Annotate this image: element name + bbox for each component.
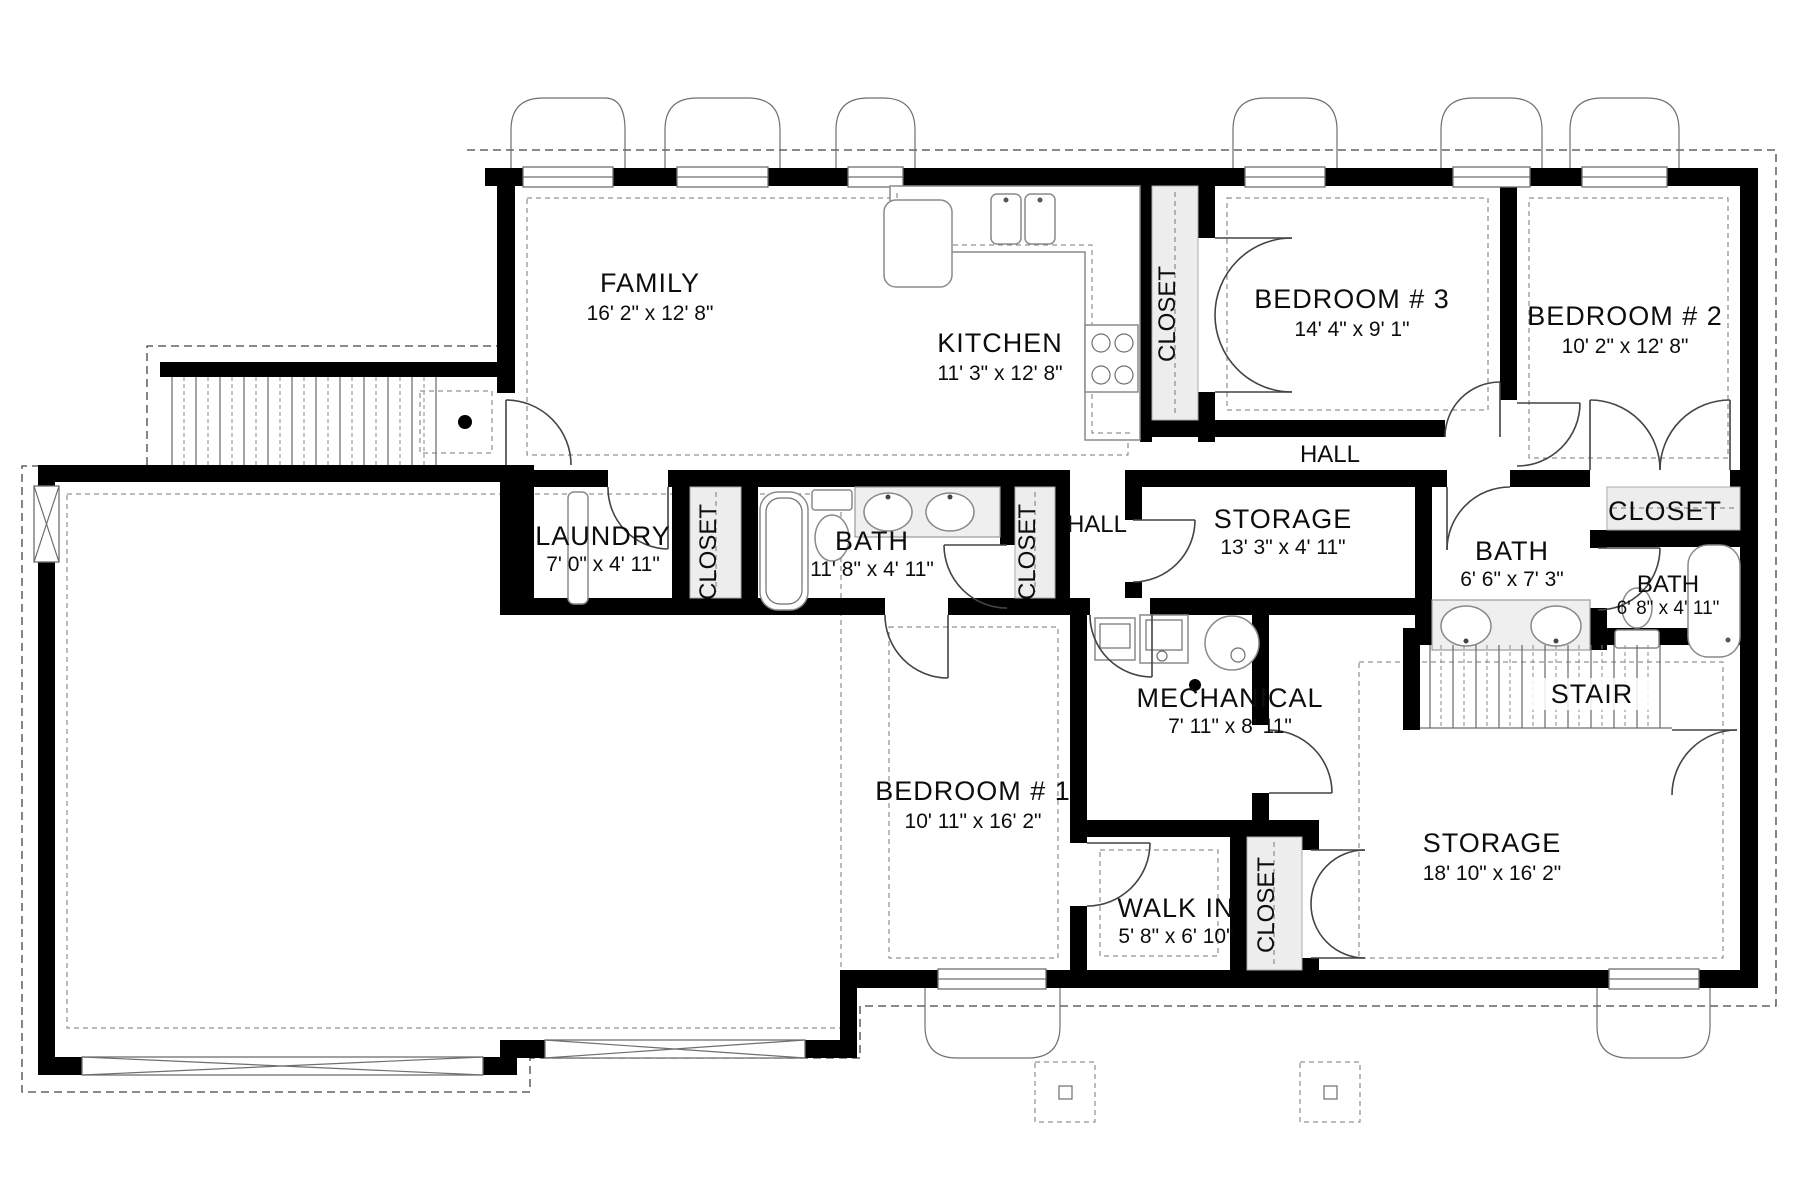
garage-beam-right <box>545 1040 805 1058</box>
storage-small-door <box>1133 520 1195 582</box>
label-hall-lower: HALL <box>1067 511 1127 538</box>
walkin-closet-double-doors <box>1311 850 1365 958</box>
bathtub-1 <box>760 492 808 610</box>
bedroom2-door <box>1517 403 1580 466</box>
label-bedroom3: BEDROOM # 3 <box>1254 284 1450 314</box>
label-storage-big: STORAGE <box>1423 828 1562 858</box>
stove <box>1085 325 1138 392</box>
dim-storage-big: 18' 10" x 16' 2" <box>1423 862 1562 885</box>
label-bath1: BATH <box>835 526 909 556</box>
label-stair: STAIR <box>1528 678 1656 710</box>
label-closet-bedroom2: CLOSET <box>1608 496 1722 526</box>
label-closet-laundry: CLOSET <box>695 504 722 600</box>
label-closet-kitchen: CLOSET <box>1154 266 1181 362</box>
label-hall-upper: HALL <box>1300 441 1360 468</box>
label-closet-walkin: CLOSET <box>1253 857 1280 953</box>
label-bath3: BATH <box>1637 571 1699 598</box>
dim-mechanical: 7' 11" x 8' 11" <box>1168 715 1292 738</box>
bedroom2-closet-double-doors <box>1590 400 1730 470</box>
garage-beam-left <box>82 1057 483 1075</box>
kitchen-peninsula <box>884 200 952 287</box>
label-closet-hall: CLOSET <box>1014 504 1041 600</box>
label-bath2: BATH <box>1475 536 1549 566</box>
furnace <box>1095 615 1188 663</box>
water-heater <box>1205 616 1259 670</box>
label-laundry: LAUNDRY <box>535 521 671 551</box>
svg-text:STAIR: STAIR <box>1551 679 1634 709</box>
dim-bath2: 6' 6" x 7' 3" <box>1460 568 1563 591</box>
mechanical-door-east <box>1269 730 1332 793</box>
label-kitchen: KITCHEN <box>937 328 1063 358</box>
dim-kitchen: 11' 3" x 12' 8" <box>937 362 1062 385</box>
footing-posts <box>1035 1062 1360 1122</box>
label-family: FAMILY <box>600 268 700 298</box>
stair-post <box>458 415 472 429</box>
dim-storage-small: 13' 3" x 4' 11" <box>1220 536 1345 559</box>
label-storage-small: STORAGE <box>1214 504 1353 534</box>
dim-bedroom1: 10' 11" x 16' 2" <box>905 810 1042 833</box>
dim-bedroom3: 14' 4" x 9' 1" <box>1294 318 1409 341</box>
dim-bath1: 11' 8" x 4' 11" <box>810 558 934 581</box>
label-bedroom1: BEDROOM # 1 <box>875 776 1071 806</box>
floorplan-canvas: FAMILY 16' 2" x 12' 8" KITCHEN 11' 3" x … <box>0 0 1799 1200</box>
entry-stair <box>172 377 492 465</box>
dim-bath3: 6' 8" x 4' 11" <box>1617 598 1720 619</box>
dim-bedroom2: 10' 2" x 12' 8" <box>1562 335 1689 358</box>
label-mechanical: MECHANICAL <box>1136 683 1323 713</box>
bedroom1-door <box>885 615 948 678</box>
label-walkin: WALK IN <box>1117 893 1234 923</box>
stair-door <box>1672 730 1737 795</box>
dim-laundry: 7' 0" x 4' 11" <box>546 553 660 576</box>
dim-walkin: 5' 8" x 6' 10" <box>1118 925 1233 948</box>
left-wall-window <box>34 486 59 562</box>
dim-family: 16' 2" x 12' 8" <box>587 302 714 325</box>
floorplan-drawing: FAMILY 16' 2" x 12' 8" KITCHEN 11' 3" x … <box>0 0 1799 1200</box>
label-bedroom2: BEDROOM # 2 <box>1527 301 1723 331</box>
